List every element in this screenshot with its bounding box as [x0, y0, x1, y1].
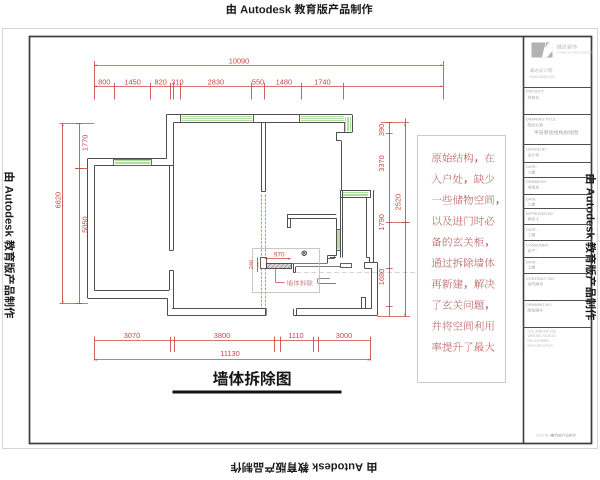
svg-text:1680: 1680	[377, 269, 386, 285]
svg-text:6820: 6820	[53, 192, 62, 208]
svg-text:CHENG DA DECORATION: CHENG DA DECORATION	[557, 51, 593, 55]
svg-text:3800: 3800	[214, 331, 230, 340]
svg-text:3070: 3070	[124, 331, 140, 340]
svg-text:WEB 400-700-8163: WEB 400-700-8163	[528, 334, 556, 338]
svg-text:240: 240	[249, 260, 255, 269]
svg-text:800: 800	[98, 77, 110, 86]
svg-text:(TEL 4008-826-163): (TEL 4008-826-163)	[528, 330, 557, 334]
svg-text:DATE:: DATE:	[526, 197, 537, 201]
svg-text:CONSUMER:: CONSUMER:	[526, 243, 549, 247]
svg-text:FAX 63794989: FAX 63794989	[528, 339, 549, 343]
svg-text:1790: 1790	[377, 214, 386, 230]
svg-text:1450: 1450	[124, 77, 140, 86]
svg-text:DATE:: DATE:	[526, 260, 537, 264]
svg-text:3000: 3000	[336, 331, 352, 340]
svg-text:DRAWING NO:: DRAWING NO:	[526, 303, 552, 307]
svg-text:2830: 2830	[208, 77, 224, 86]
svg-text:5050: 5050	[81, 216, 90, 232]
svg-text:11130: 11130	[220, 349, 239, 358]
svg-text:1480: 1480	[276, 77, 292, 86]
svg-text:310: 310	[171, 77, 183, 86]
svg-text:DRAWN BY:: DRAWN BY:	[526, 180, 547, 184]
svg-text:APPROVED BY:: APPROVED BY:	[526, 212, 554, 216]
svg-text:DATE:: DATE:	[526, 165, 537, 169]
svg-text:4982-8839-222: 4982-8839-222	[530, 75, 556, 79]
svg-text:970: 970	[274, 252, 285, 259]
svg-text:3370: 3370	[377, 155, 386, 171]
svg-text:DESIGN BY:: DESIGN BY:	[526, 147, 548, 151]
svg-text:CONTRACT NO:: CONTRACT NO:	[526, 277, 555, 281]
svg-text:820: 820	[155, 77, 167, 86]
svg-text:www.cdzs.com.cn: www.cdzs.com.cn	[528, 343, 554, 347]
svg-text:DATE:: DATE:	[526, 228, 537, 232]
svg-text:550: 550	[252, 77, 264, 86]
svg-text:2023-05-10: 2023-05-10	[536, 433, 553, 437]
svg-text:1110: 1110	[288, 331, 303, 340]
svg-text:1770: 1770	[81, 135, 90, 151]
svg-text:390: 390	[377, 124, 386, 136]
svg-text:PROJECT:: PROJECT:	[526, 90, 544, 94]
svg-text:10090: 10090	[229, 56, 250, 65]
svg-text:DRAWING TITLE:: DRAWING TITLE:	[526, 118, 557, 122]
svg-text:2520: 2520	[393, 194, 402, 210]
svg-text:1740: 1740	[314, 77, 330, 86]
